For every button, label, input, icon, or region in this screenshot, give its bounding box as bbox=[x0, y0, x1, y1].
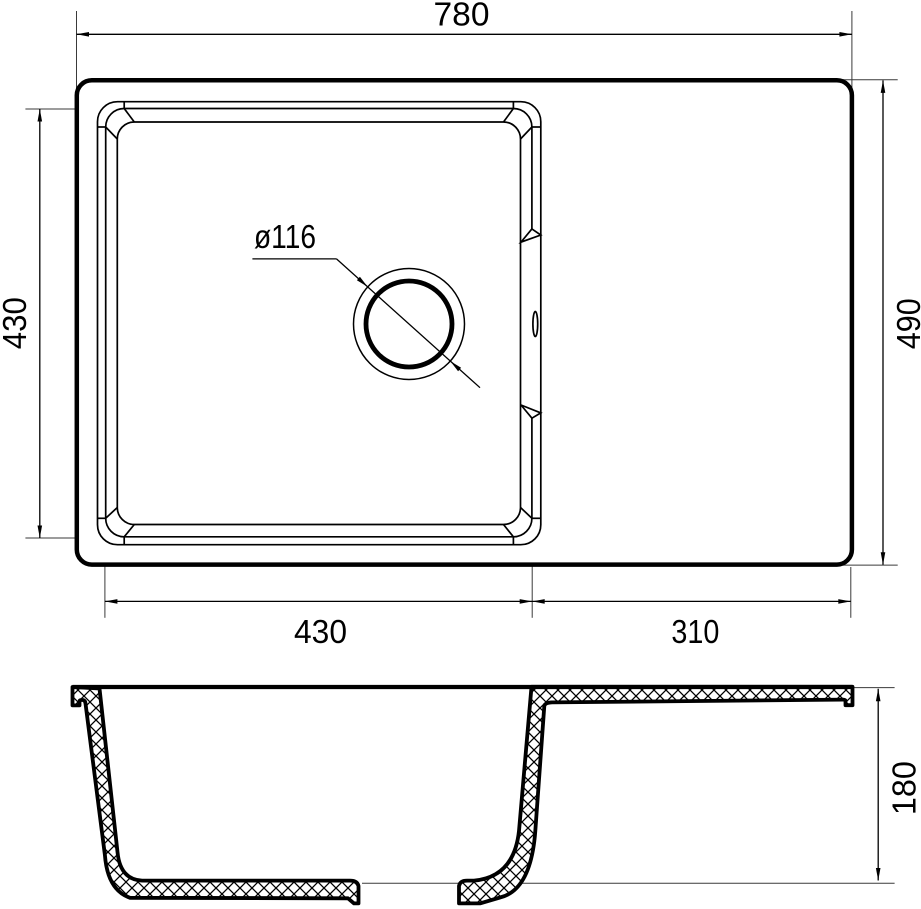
svg-text:490: 490 bbox=[891, 298, 921, 349]
svg-text:430: 430 bbox=[0, 297, 34, 349]
svg-text:180: 180 bbox=[887, 761, 921, 815]
svg-text:ø116: ø116 bbox=[254, 219, 316, 256]
svg-text:310: 310 bbox=[671, 614, 719, 651]
svg-text:780: 780 bbox=[434, 0, 490, 33]
svg-text:430: 430 bbox=[294, 614, 347, 651]
